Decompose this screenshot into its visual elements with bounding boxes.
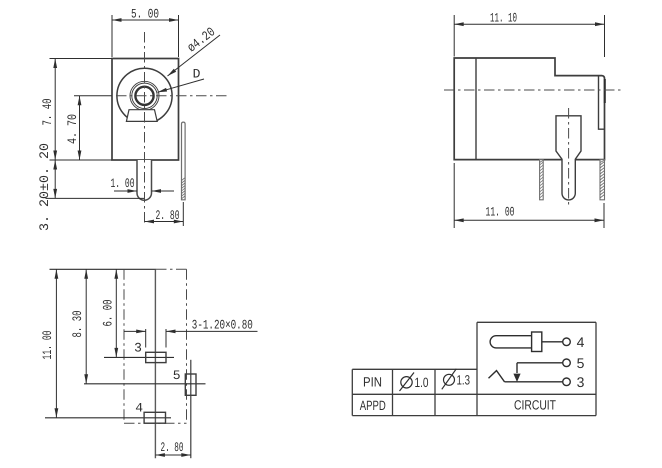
svg-text:4: 4 [135,401,143,416]
svg-text:3. 20±0. 20: 3. 20±0. 20 [37,143,52,231]
svg-text:1. 00: 1. 00 [111,176,135,191]
svg-text:4. 70: 4. 70 [65,114,80,144]
svg-text:3: 3 [577,374,585,390]
svg-text:1.0: 1.0 [415,375,429,390]
svg-text:5. 00: 5. 00 [131,7,159,22]
svg-text:1.3: 1.3 [457,373,471,388]
svg-text:5: 5 [173,368,181,383]
svg-text:2. 80: 2. 80 [161,440,184,455]
svg-text:APPD: APPD [360,398,386,413]
svg-text:7. 40: 7. 40 [40,99,55,126]
svg-text:4: 4 [577,334,585,350]
svg-text:5: 5 [577,355,585,371]
svg-text:11. 00: 11. 00 [40,331,55,360]
svg-text:8. 30: 8. 30 [70,311,85,338]
svg-text:2. 80: 2. 80 [156,208,180,223]
svg-text:11. 00: 11. 00 [486,205,515,220]
svg-text:3-1.20×0.80: 3-1.20×0.80 [192,318,253,333]
svg-text:D: D [193,67,201,82]
svg-text:3: 3 [134,341,142,356]
svg-text:6. 00: 6. 00 [100,300,115,327]
svg-text:PIN: PIN [363,375,382,390]
svg-text:11. 10: 11. 10 [490,10,517,25]
svg-text:CIRCUIT: CIRCUIT [514,398,556,413]
